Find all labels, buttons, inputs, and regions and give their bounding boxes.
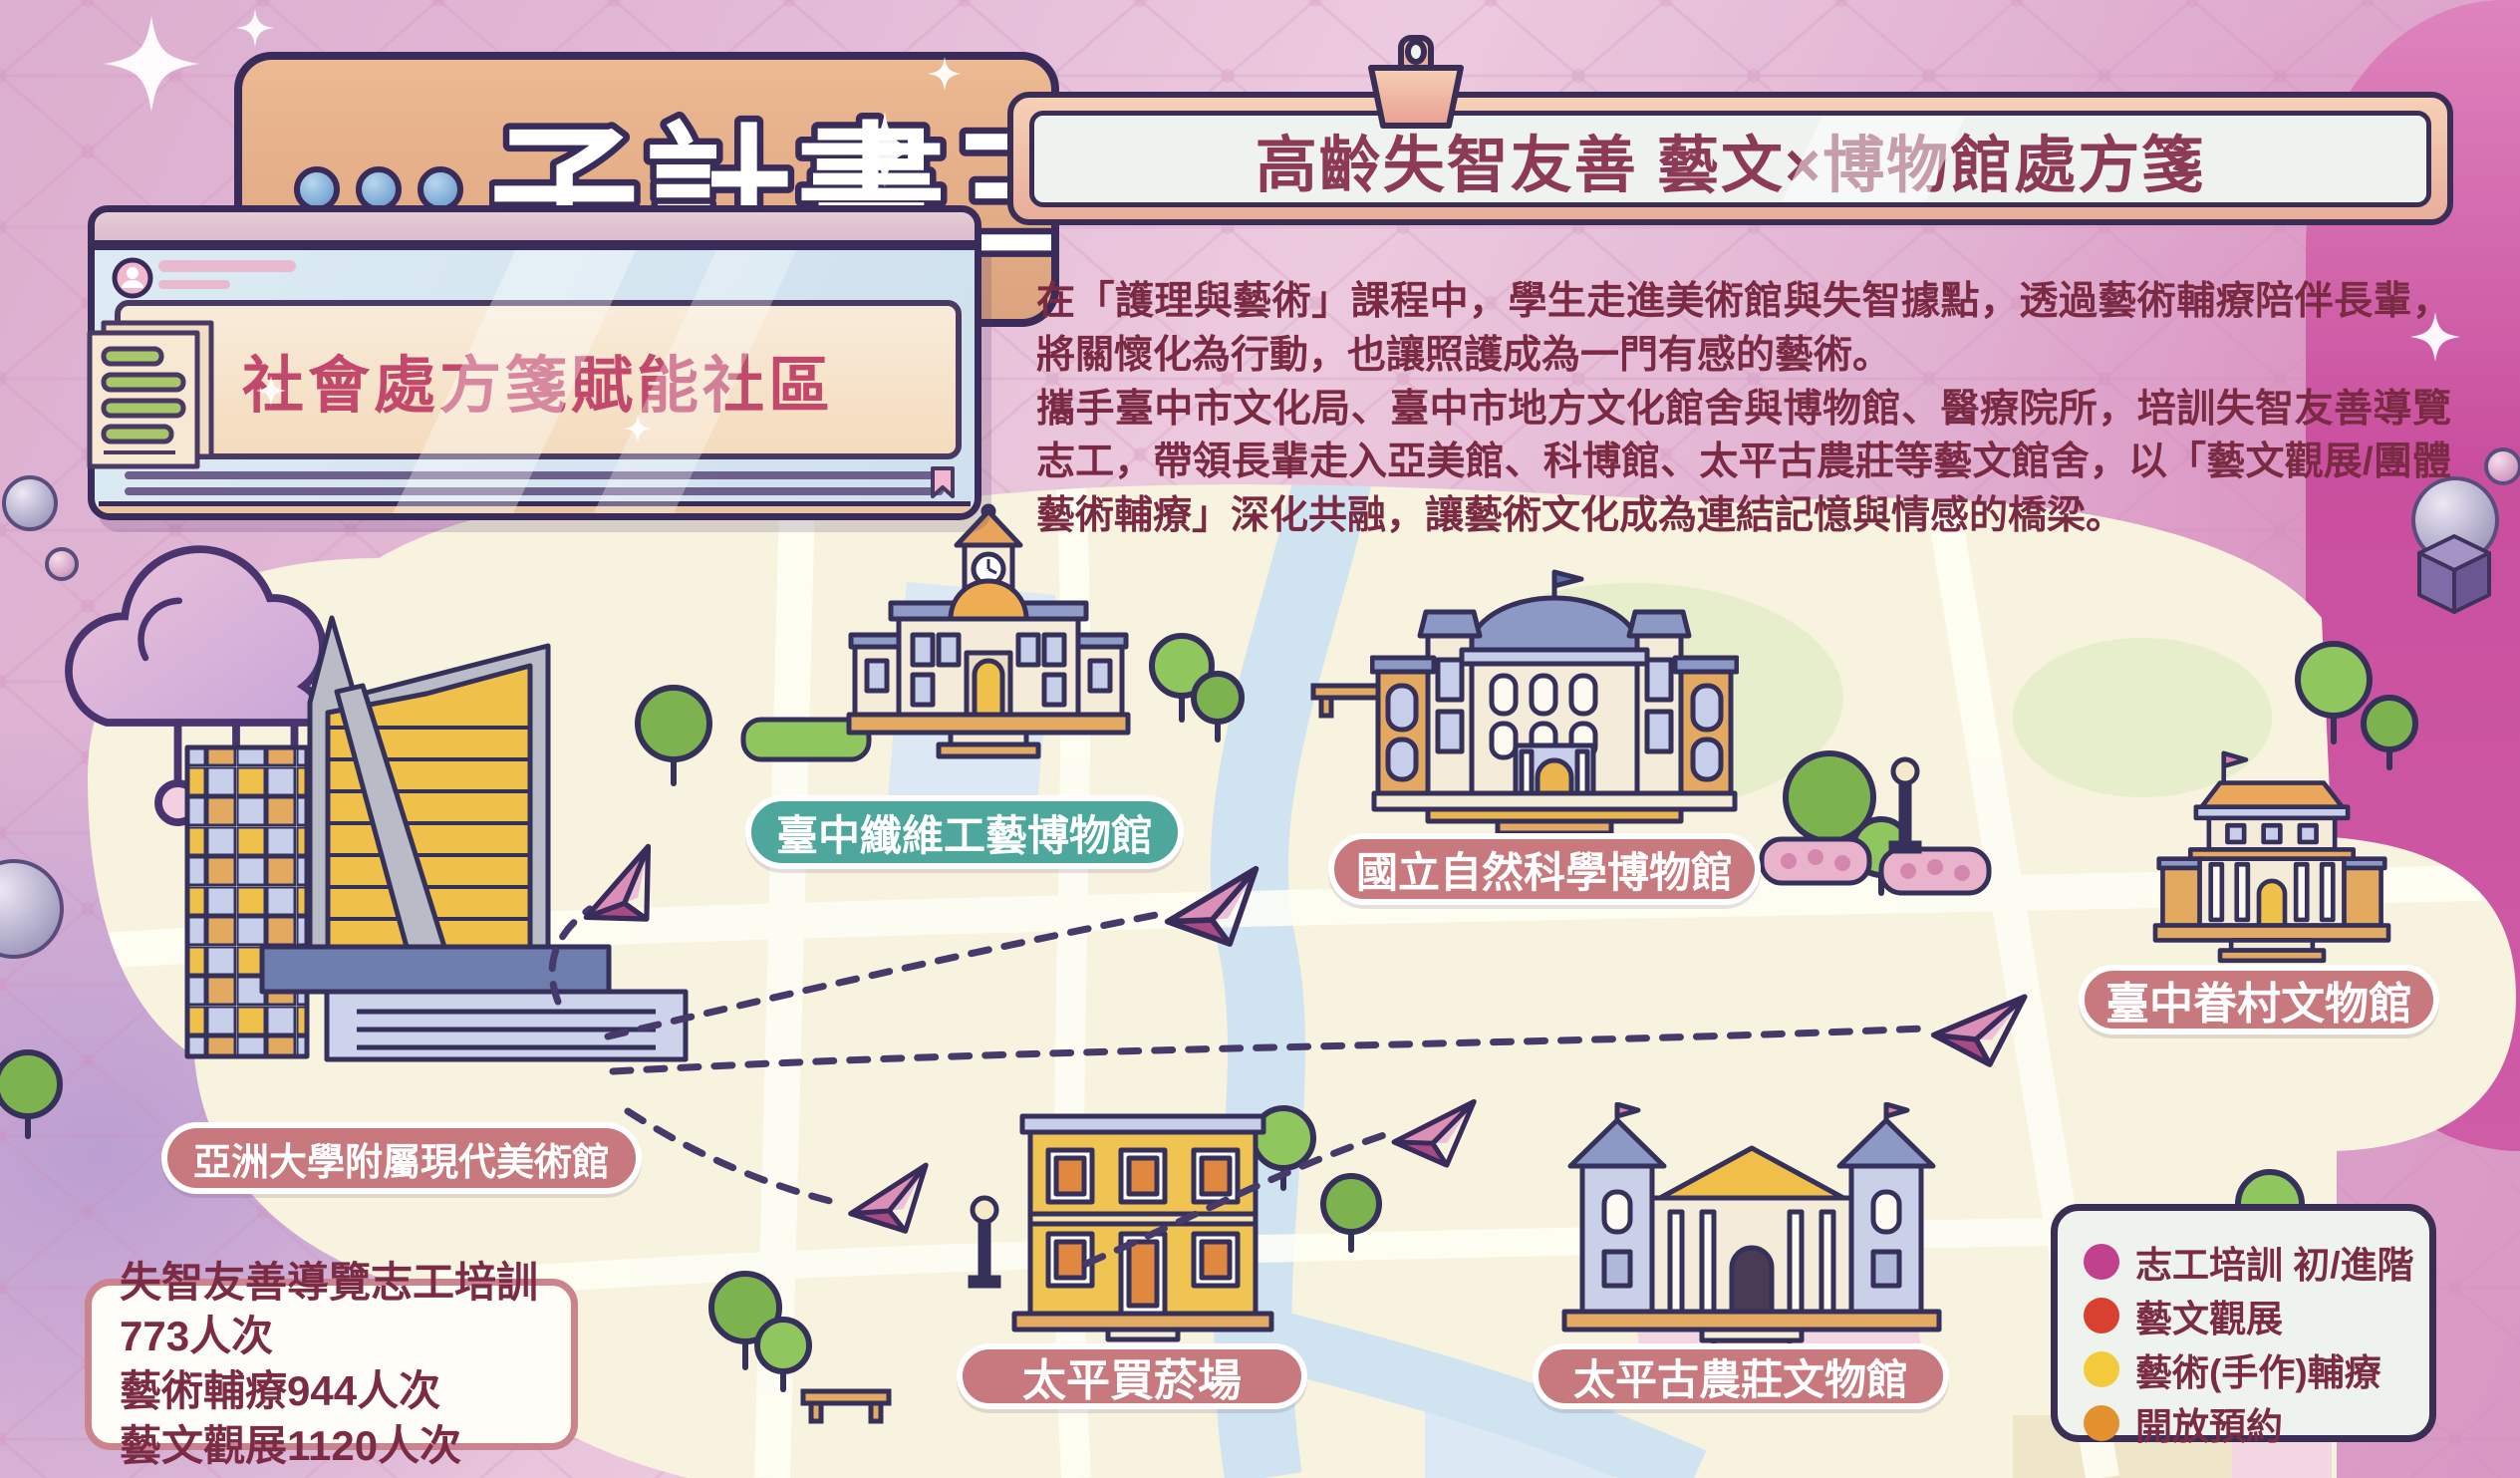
clipboard-clip-icon <box>1357 30 1477 140</box>
legend-label: 藝文觀展 <box>2135 1289 2283 1342</box>
intro-paragraph-1: 在「護理與藝術」課程中，學生走進美術館與失智據點，透過藝術輔療陪伴長輩，將關懷化… <box>1036 275 2451 383</box>
site-pill-military-village-museum: 臺中眷村文物館 <box>2079 965 2439 1035</box>
site-pill-asia-university-museum: 亞洲大學附屬現代美術館 <box>161 1122 642 1194</box>
site-label: 國立自然科學博物館 <box>1356 839 1733 900</box>
legend-item: 志工培訓 初/進階 <box>2084 1235 2403 1289</box>
site-pill-tobacco-barn: 太平買菸場 <box>957 1343 1307 1409</box>
site-pill-old-farm-museum: 太平古農莊文物館 <box>1533 1343 1949 1409</box>
site-label: 臺中纖維工藝博物館 <box>776 802 1153 863</box>
bookmark-icon <box>930 465 956 499</box>
user-avatar-icon <box>111 256 154 300</box>
stat-line: 藝術輔療944人次 <box>120 1364 543 1419</box>
document-stack-icon <box>80 315 239 479</box>
window-title-bar <box>88 205 981 247</box>
legend-item: 藝文觀展 <box>2084 1289 2403 1342</box>
legend-dot-exhibition <box>2084 1298 2119 1333</box>
stat-line: 失智友善導覽志工培訓773人次 <box>120 1256 543 1364</box>
legend-item: 開放預約 <box>2084 1396 2403 1450</box>
legend-dot-volunteer-training <box>2084 1244 2119 1280</box>
window-divider-line <box>125 487 944 495</box>
legend-label: 開放預約 <box>2135 1396 2283 1450</box>
window-divider-line <box>125 471 944 479</box>
site-pill-fiber-museum: 臺中纖維工藝博物館 <box>745 795 1184 869</box>
stat-line: 藝文觀展1120人次 <box>120 1419 543 1474</box>
site-pill-science-museum: 國立自然科學博物館 <box>1328 833 1761 905</box>
legend-label: 志工培訓 初/進階 <box>2135 1235 2414 1289</box>
legend-item: 藝術(手作)輔療 <box>2084 1342 2403 1396</box>
window-text-line <box>158 260 296 272</box>
intro-paragraph-2: 攜手臺中市文化局、臺中市地方文化館舍與博物館、醫療院所，培訓失智友善導覽志工，帶… <box>1036 383 2451 543</box>
window-inner-panel: 社會處方箋賦能社區 <box>115 300 962 459</box>
stats-box: 失智友善導覽志工培訓773人次 藝術輔療944人次 藝文觀展1120人次 <box>85 1279 578 1450</box>
poster: 臺中纖維工藝博物館 國立自然科學博物館 臺中眷村文物館 亞洲大學附屬現代美術館 … <box>0 0 2520 1478</box>
clipboard-header-inner: 高齡失智友善 藝文×博物館處方箋 <box>1029 111 2431 207</box>
site-label: 太平古農莊文物館 <box>1573 1346 1908 1407</box>
legend-dot-art-therapy <box>2084 1351 2119 1387</box>
window-title: 社會處方箋賦能社區 <box>242 335 834 425</box>
legend-dot-open-booking <box>2084 1405 2119 1441</box>
window-footer <box>99 501 971 520</box>
site-label: 亞洲大學附屬現代美術館 <box>193 1131 610 1186</box>
site-label: 臺中眷村文物館 <box>2105 968 2412 1032</box>
legend-box: 志工培訓 初/進階 藝文觀展 藝術(手作)輔療 開放預約 <box>2051 1204 2436 1442</box>
site-label: 太平買菸場 <box>1022 1344 1242 1408</box>
window-text-line <box>158 280 230 289</box>
intro-paragraph: 在「護理與藝術」課程中，學生走進美術館與失智據點，透過藝術輔療陪伴長輩，將關懷化… <box>1036 275 2451 543</box>
legend-label: 藝術(手作)輔療 <box>2135 1342 2381 1396</box>
